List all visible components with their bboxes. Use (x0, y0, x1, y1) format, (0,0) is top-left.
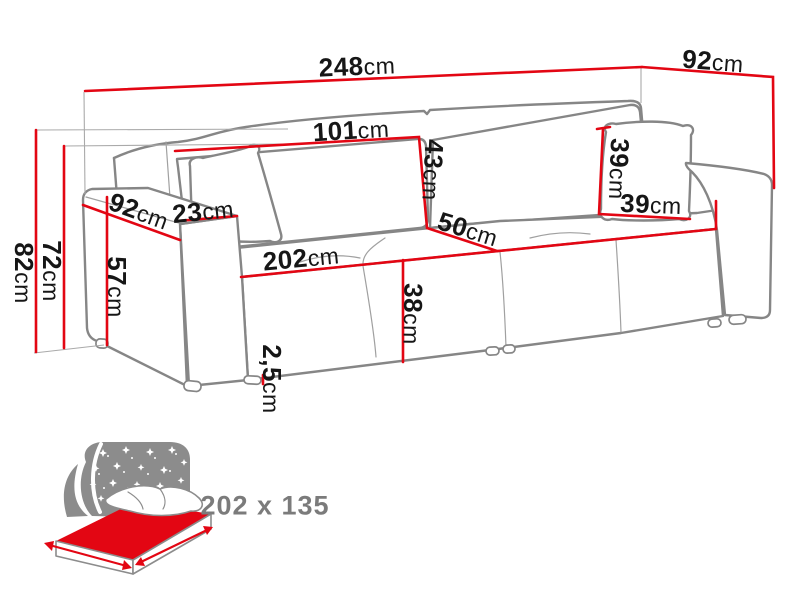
dim-unit: cm (650, 192, 683, 219)
dim-seat-height: 38cm (399, 283, 426, 345)
dim-unit: cm (711, 49, 745, 77)
dim-back-cushion-height: 43cm (418, 139, 447, 202)
dim-unit: cm (357, 116, 390, 144)
dim-unit: cm (201, 196, 235, 225)
sofa-dimension-diagram: 248cm 92cm 101cm 43cm 39cm 39cm 50cm 92c… (0, 0, 800, 600)
dim-value: 23 (171, 196, 204, 229)
dim-value: 202 (261, 242, 309, 276)
dim-value: 39 (604, 138, 635, 169)
sleeping-area-dimensions: 202 x 135 (200, 491, 329, 522)
dim-unit: cm (38, 270, 64, 302)
dim-unit: cm (306, 242, 340, 271)
dim-value: 39 (620, 188, 651, 219)
dim-value: 57 (102, 256, 132, 286)
sleeping-bed-icon (44, 442, 213, 574)
dim-total-width: 248cm (318, 51, 396, 80)
dim-total-depth: 92cm (681, 46, 744, 77)
dim-pillow-width: 39cm (620, 190, 682, 218)
dim-back-cushion-width: 101cm (312, 115, 390, 146)
dim-unit: cm (398, 313, 425, 345)
dim-unit: cm (363, 52, 396, 79)
dim-unit: cm (10, 272, 36, 304)
dim-unit: cm (258, 382, 284, 414)
dim-frame-height: 72cm (39, 240, 65, 302)
dim-armrest-width: 23cm (171, 195, 235, 227)
dim-value: 248 (318, 51, 364, 83)
dim-value: 101 (312, 115, 359, 148)
dim-value: 92 (681, 44, 713, 76)
dim-value: 43 (418, 138, 450, 169)
dim-value: 38 (398, 283, 429, 313)
dim-value: 2,5 (257, 344, 287, 382)
dim-unit: cm (417, 168, 445, 201)
dim-unit: cm (103, 286, 129, 318)
dim-armrest-height: 57cm (104, 256, 130, 318)
dim-value: 82 (9, 242, 39, 272)
dim-leg-height: 2,5cm (259, 344, 285, 413)
dim-value: 72 (37, 240, 67, 270)
dim-total-height: 82cm (11, 242, 37, 304)
